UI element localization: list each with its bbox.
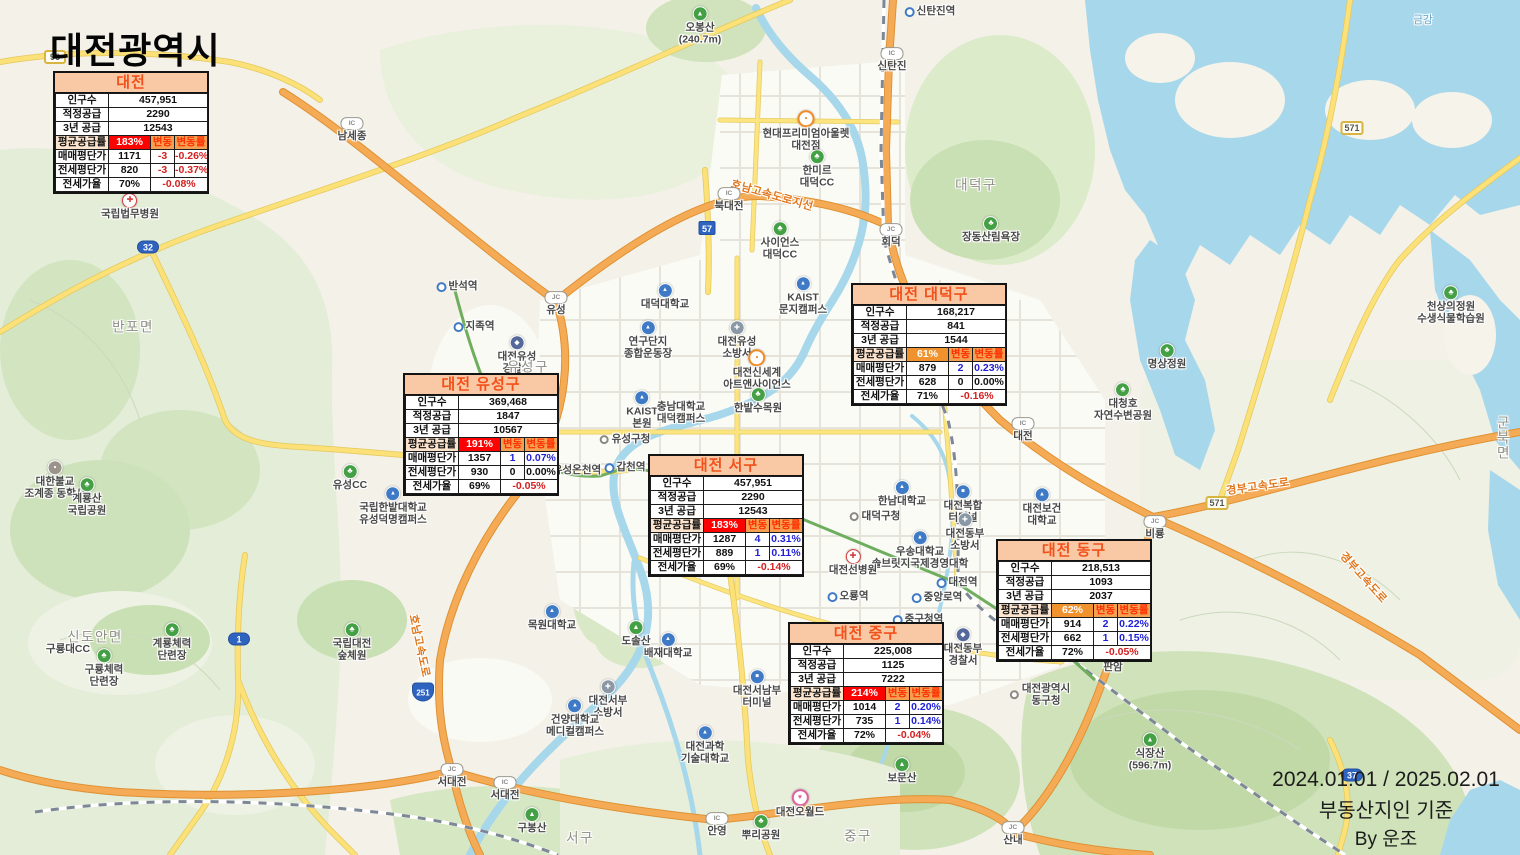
map-label-text: 경부고속도로 [1226, 476, 1291, 497]
jeonse-ratio-value: 69% [704, 561, 746, 575]
population-value: 225,008 [844, 645, 943, 659]
map-label-jc: JC서대전 [438, 763, 467, 789]
footer-note: 2024.01.01 / 2025.02.01 부동산지인 기준 By 운조 [1272, 768, 1500, 851]
sale-rate-value: 0.20% [910, 701, 943, 715]
map-label-univ: 건양대학교 메디컬캠퍼스 [546, 698, 604, 738]
map-label-text: 대전과학 기술대학교 [681, 741, 729, 765]
map-label-text: 신도안면 [67, 629, 123, 644]
map-label-text: KAIST 문지캠퍼스 [779, 292, 827, 316]
map-label-ic: IC북대전 [715, 187, 744, 213]
map-label-terminal: 대전복합 터미널 [944, 484, 983, 524]
row-label-jeonse-ratio: 전세가율 [651, 561, 704, 575]
station-icon [828, 592, 838, 602]
map-label-univ: 대덕대학교 [641, 283, 689, 311]
supply-rate-value: 214% [844, 687, 886, 701]
row-label-3yr-supply: 3년 공급 [56, 122, 109, 136]
map-label-road: 경부고속도로 [1226, 476, 1291, 497]
map-label-ic: IC신탄진 [878, 47, 907, 73]
map-label-station: 대전역 [937, 577, 978, 589]
hospital-icon [846, 549, 861, 564]
map-label-district: 군북면 [1496, 415, 1512, 460]
3yr-supply-value: 1544 [907, 334, 1006, 348]
sale-change-value: 2 [949, 362, 973, 376]
supply-rate-value: 62% [1052, 604, 1094, 618]
map-label-fire: 대전유성 소방서 [718, 320, 757, 360]
univ-icon [641, 320, 656, 335]
sale-rate-value: 0.23% [973, 362, 1006, 376]
map-label-text: 대전광역시 동구청 [1022, 683, 1070, 707]
jc-badge: JC [880, 223, 903, 236]
mountain-icon [628, 620, 643, 635]
stats-table-jung-gu: 대전 중구인구수225,008적정공급11253년 공급7222평균공급률214… [788, 622, 944, 745]
sale-rate-value: 0.31% [770, 533, 803, 547]
map-label-text: 계룡체력 단련장 [153, 638, 192, 662]
station-icon [912, 593, 922, 603]
page-title: 대전광역시 [50, 22, 221, 74]
stats-grid: 인구수457,951적정공급22903년 공급12543평균공급률183%변동변… [650, 476, 803, 575]
supply-rate-value: 191% [459, 438, 501, 452]
stats-grid: 인구수168,217적정공급8413년 공급1544평균공급률61%변동변동률매… [853, 305, 1006, 404]
shopping-icon [797, 110, 814, 127]
proper-supply-value: 2290 [704, 491, 803, 505]
map-label-plain: 구룡대CC [46, 644, 90, 656]
map-label-park: 한밭수목원 [734, 387, 782, 415]
row-label-supply-rate: 평균공급률 [56, 136, 109, 150]
change-rate-header: 변동률 [910, 687, 943, 701]
jeonse-change-value: 0 [501, 466, 525, 480]
map-label-mountain: 식장산 (596.7m) [1129, 732, 1172, 772]
park-icon [344, 622, 359, 637]
sale-price-value: 879 [907, 362, 949, 376]
map-label-station: 오룡역 [828, 591, 869, 603]
map-label-police: 대전동부 경찰서 [944, 627, 983, 667]
table-title: 대전 대덕구 [853, 285, 1005, 305]
map-label-park: 구룡체력 단련장 [85, 648, 124, 688]
row-label-sale-price: 매매평단가 [791, 701, 844, 715]
stats-grid: 인구수225,008적정공급11253년 공급7222평균공급률214%변동변동… [790, 644, 943, 743]
map-label-park: 천상의정원 수생식물학습원 [1417, 285, 1485, 325]
map-label-ic: IC안영 [706, 812, 729, 838]
map-label-text: 대전 [1013, 431, 1032, 443]
map-label-text: 대한불교 조계종 동학사 [25, 476, 86, 500]
government-office-icon [600, 436, 609, 445]
map-label-text: 유성 [546, 305, 565, 317]
row-label-supply-rate: 평균공급률 [854, 348, 907, 362]
row-label-3yr-supply: 3년 공급 [999, 590, 1052, 604]
map-label-text: 산내 [1003, 835, 1022, 847]
jeonse-ratio-rate-value: -0.05% [1094, 646, 1151, 660]
map-label-text: 대전유성 경찰서 [498, 351, 537, 375]
jeonse-rate-value: 0.15% [1118, 632, 1151, 646]
park-icon [751, 387, 766, 402]
jc-badge: JC [1002, 821, 1025, 834]
map-label-text: 대전보건 대학교 [1023, 503, 1062, 527]
map-label-station: 중앙로역 [912, 592, 963, 604]
map-label-text: 남세종 [338, 131, 367, 143]
map-label-text: 대전서부 소방서 [589, 695, 628, 719]
table-title: 대전 중구 [790, 624, 942, 644]
row-label-sale-price: 매매평단가 [56, 150, 109, 164]
map-label-road: 호남고속도로 [406, 614, 431, 679]
map-label-text: 명상정원 [1148, 359, 1187, 371]
table-title: 대전 서구 [650, 456, 802, 476]
row-label-jeonse-price: 전세평단가 [854, 376, 907, 390]
proper-supply-value: 1093 [1052, 576, 1151, 590]
jeonse-rate-value: -0.37% [175, 164, 208, 178]
row-label-jeonse-ratio: 전세가율 [56, 178, 109, 192]
map-label-text: KAIST 본원 [626, 406, 658, 430]
stats-table-daedeok-gu: 대전 대덕구인구수168,217적정공급8413년 공급1544평균공급률61%… [851, 283, 1007, 406]
map-label-jc: JC비룡 [1144, 515, 1167, 541]
map-label-road: 호남고속도로지선 [729, 178, 814, 213]
map-label-text: 신탄진역 [917, 6, 956, 18]
map-label-text: 사이언스 대덕CC [761, 237, 800, 261]
map-label-text: 신탄진 [878, 61, 907, 73]
row-label-sale-price: 매매평단가 [651, 533, 704, 547]
map-label-terminal: 대전서남부 터미널 [733, 669, 781, 709]
map-label-text: 반석역 [449, 281, 478, 293]
jeonse-price-value: 889 [704, 547, 746, 561]
map-label-text: 중구 [844, 828, 872, 843]
row-label-population: 인구수 [56, 94, 109, 108]
map-label-univ: 대전보건 대학교 [1023, 487, 1062, 527]
univ-icon [912, 530, 927, 545]
park-icon [984, 216, 999, 231]
sale-price-value: 1014 [844, 701, 886, 715]
government-office-icon [850, 513, 859, 522]
population-value: 457,951 [704, 477, 803, 491]
jeonse-price-value: 930 [459, 466, 501, 480]
map-label-text: 천상의정원 수생식물학습원 [1417, 301, 1485, 325]
proper-supply-value: 1125 [844, 659, 943, 673]
map-label-text: 대덕대학교 [641, 299, 689, 311]
map-label-govt: 유성구청 [600, 434, 651, 446]
3yr-supply-value: 2037 [1052, 590, 1151, 604]
map-label-text: 뿌리공원 [742, 830, 781, 842]
map-label-text: 한미르 대덕CC [800, 165, 835, 189]
jeonse-ratio-rate-value: -0.14% [746, 561, 803, 575]
attraction-icon [792, 789, 809, 806]
row-label-sale-price: 매매평단가 [999, 618, 1052, 632]
mountain-icon [1142, 732, 1157, 747]
map-label-text: 서대전 [491, 790, 520, 802]
map-label-road: 경부고속도로 [1337, 550, 1389, 606]
map-label-mountain: 도솔산 [622, 620, 651, 648]
map-label-park: 장동산림욕장 [962, 216, 1020, 244]
park-icon [772, 221, 787, 236]
row-label-proper-supply: 적정공급 [56, 108, 109, 122]
3yr-supply-value: 10567 [459, 424, 558, 438]
table-title: 대전 유성구 [405, 375, 557, 395]
map-label-text: 식장산 (596.7m) [1129, 748, 1172, 772]
row-label-proper-supply: 적정공급 [651, 491, 704, 505]
row-label-proper-supply: 적정공급 [854, 320, 907, 334]
row-label-jeonse-ratio: 전세가율 [999, 646, 1052, 660]
row-label-jeonse-ratio: 전세가율 [406, 480, 459, 494]
sale-price-value: 1357 [459, 452, 501, 466]
map-label-district: 대덕구 [955, 177, 997, 192]
map-label-park: 유성CC [333, 464, 368, 492]
park-icon [810, 149, 825, 164]
univ-icon [661, 632, 676, 647]
map-label-temple: 대한불교 조계종 동학사 [25, 460, 86, 500]
jeonse-ratio-rate-value: -0.04% [886, 729, 943, 743]
route-shield: 32 [137, 241, 159, 254]
map-label-text: 연구단지 종합운동장 [624, 336, 672, 360]
sale-price-value: 1171 [109, 150, 151, 164]
fire-icon [600, 679, 615, 694]
map-label-text: 장동산림욕장 [962, 232, 1020, 244]
map-label-text: 오룡역 [840, 591, 869, 603]
police-icon [955, 627, 970, 642]
stats-table-seo-gu: 대전 서구인구수457,951적정공급22903년 공급12543평균공급률18… [648, 454, 804, 577]
terminal-icon [750, 669, 765, 684]
jeonse-price-value: 628 [907, 376, 949, 390]
proper-supply-value: 841 [907, 320, 1006, 334]
map-label-univ: 배재대학교 [644, 632, 692, 660]
map-label-univ: KAIST 본원 [626, 390, 658, 430]
change-rate-header: 변동률 [1118, 604, 1151, 618]
map-label-text: 안영 [707, 826, 726, 838]
jeonse-ratio-value: 71% [907, 390, 949, 404]
route-shield: 571 [1340, 121, 1363, 135]
row-label-supply-rate: 평균공급률 [999, 604, 1052, 618]
map-label-text: 유성CC [333, 480, 368, 492]
univ-icon [568, 698, 583, 713]
map-label-park: 명상정원 [1148, 343, 1187, 371]
row-label-3yr-supply: 3년 공급 [854, 334, 907, 348]
population-value: 369,468 [459, 396, 558, 410]
row-label-jeonse-price: 전세평단가 [56, 164, 109, 178]
map-label-text: 대덕구청 [862, 511, 901, 523]
map-label-text: 대전동부 경찰서 [944, 643, 983, 667]
3yr-supply-value: 12543 [109, 122, 208, 136]
map-label-univ: KAIST 문지캠퍼스 [779, 276, 827, 316]
row-label-jeonse-price: 전세평단가 [651, 547, 704, 561]
jc-badge: JC [1144, 515, 1167, 528]
jeonse-rate-value: 0.11% [770, 547, 803, 561]
map-label-station: 신탄진역 [905, 6, 956, 18]
footer-date-range: 2024.01.01 / 2025.02.01 [1272, 768, 1500, 792]
univ-icon [1034, 487, 1049, 502]
temple-icon [47, 460, 62, 475]
jeonse-change-value: 1 [746, 547, 770, 561]
map-label-text: 충남대학교 대덕캠퍼스 [657, 401, 705, 425]
map-label-text: 갑천역 [617, 462, 646, 474]
map-label-text: 반포면 [112, 319, 154, 334]
government-office-icon [1010, 691, 1019, 700]
map-label-water: 금강 [1413, 15, 1432, 27]
jeonse-price-value: 662 [1052, 632, 1094, 646]
change-rate-header: 변동률 [973, 348, 1006, 362]
map-label-text: 국립한밭대학교 유성덕명캠퍼스 [359, 502, 427, 526]
univ-icon [698, 725, 713, 740]
ic-badge: IC [1012, 417, 1035, 430]
univ-icon [386, 486, 401, 501]
map-label-park: 뿌리공원 [742, 814, 781, 842]
jc-badge: JC [440, 763, 463, 776]
map-label-text: 대전복합 터미널 [944, 500, 983, 524]
jeonse-price-value: 735 [844, 715, 886, 729]
change-rate-header: 변동률 [175, 136, 208, 150]
row-label-proper-supply: 적정공급 [406, 410, 459, 424]
row-label-population: 인구수 [406, 396, 459, 410]
map-label-park: 한미르 대덕CC [800, 149, 835, 189]
row-label-3yr-supply: 3년 공급 [406, 424, 459, 438]
map-label-shopping: 대전신세계 아트앤사이언스 [723, 349, 791, 391]
jc-badge: JC [545, 291, 568, 304]
sale-rate-value: -0.26% [175, 150, 208, 164]
map-label-text: 목원대학교 [528, 620, 576, 632]
map-label-text: 서구 [566, 830, 594, 845]
map-label-text: 현대프리미엄아울렛 대전점 [763, 128, 850, 152]
map-label-district: 신도안면 [67, 629, 123, 644]
change-header: 변동 [1094, 604, 1118, 618]
map-label-text: 구룡체력 단련장 [85, 664, 124, 688]
police-icon [509, 335, 524, 350]
sale-price-value: 1287 [704, 533, 746, 547]
shopping-icon [749, 349, 766, 366]
jeonse-ratio-value: 72% [844, 729, 886, 743]
map-label-text: 대전역 [949, 577, 978, 589]
proper-supply-value: 1847 [459, 410, 558, 424]
row-label-proper-supply: 적정공급 [999, 576, 1052, 590]
map-label-text: 구룡대CC [46, 644, 90, 656]
population-value: 168,217 [907, 306, 1006, 320]
map-label-park: 계룡체력 단련장 [153, 622, 192, 662]
station-icon [454, 322, 464, 332]
map-label-univ: 대전과학 기술대학교 [681, 725, 729, 765]
population-value: 218,513 [1052, 562, 1151, 576]
stats-table-yuseong-gu: 대전 유성구인구수369,468적정공급18473년 공급10567평균공급률1… [403, 373, 559, 496]
row-label-supply-rate: 평균공급률 [651, 519, 704, 533]
map-label-govt: 대전광역시 동구청 [1010, 683, 1070, 707]
row-label-jeonse-price: 전세평단가 [791, 715, 844, 729]
row-label-proper-supply: 적정공급 [791, 659, 844, 673]
route-shield: 251 [412, 683, 434, 702]
map-label-text: 금강 [1413, 15, 1432, 27]
station-icon [605, 463, 615, 473]
jeonse-change-value: 1 [886, 715, 910, 729]
map-label-text: 유성구청 [612, 434, 651, 446]
map-label-park: 국립대전 숲체원 [333, 622, 372, 662]
jeonse-ratio-value: 69% [459, 480, 501, 494]
map-label-text: 국립법무병원 [101, 209, 159, 221]
row-label-jeonse-price: 전세평단가 [406, 466, 459, 480]
map-label-text: 판암 [1103, 662, 1122, 674]
map-label-text: 배재대학교 [644, 648, 692, 660]
map-labels-layer: 국립법무병원반포면대한불교 조계종 동학사계룡산 국립공원유성CC국립한밭대학교… [0, 0, 1520, 855]
park-icon [96, 648, 111, 663]
row-label-population: 인구수 [854, 306, 907, 320]
park-icon [1159, 343, 1174, 358]
map-label-police: 대전유성 경찰서 [498, 335, 537, 375]
row-label-supply-rate: 평균공급률 [406, 438, 459, 452]
map-label-text: 서대전 [438, 777, 467, 789]
park-icon [164, 622, 179, 637]
fire-icon [729, 320, 744, 335]
station-icon [437, 282, 447, 292]
sale-change-value: -3 [151, 150, 175, 164]
map-label-fire: 대전서부 소방서 [589, 679, 628, 719]
stats-grid: 인구수369,468적정공급18473년 공급10567평균공급률191%변동변… [405, 395, 558, 494]
row-label-3yr-supply: 3년 공급 [791, 673, 844, 687]
footer-author: By 운조 [1272, 824, 1500, 851]
change-rate-header: 변동률 [525, 438, 558, 452]
map-label-univ: 우송대학교 솔브릿지국제경영대학 [872, 530, 969, 570]
population-value: 457,951 [109, 94, 208, 108]
map-label-park: 대청호 자연수변공원 [1094, 382, 1152, 422]
map-label-text: 대전서남부 터미널 [733, 685, 781, 709]
row-label-jeonse-price: 전세평단가 [999, 632, 1052, 646]
supply-rate-value: 183% [704, 519, 746, 533]
univ-icon [545, 604, 560, 619]
map-label-station: 반석역 [437, 281, 478, 293]
terminal-icon [955, 484, 970, 499]
univ-icon [895, 480, 910, 495]
map-label-text: 대덕구 [955, 177, 997, 192]
jeonse-rate-value: 0.14% [910, 715, 943, 729]
ic-badge: IC [493, 776, 516, 789]
3yr-supply-value: 7222 [844, 673, 943, 687]
sale-rate-value: 0.07% [525, 452, 558, 466]
route-shield: 57 [699, 221, 716, 235]
row-label-sale-price: 매매평단가 [406, 452, 459, 466]
jeonse-ratio-value: 70% [109, 178, 151, 192]
row-label-supply-rate: 평균공급률 [791, 687, 844, 701]
table-title: 대전 [55, 73, 207, 93]
jeonse-ratio-value: 72% [1052, 646, 1094, 660]
univ-icon [796, 276, 811, 291]
park-icon [753, 814, 768, 829]
fire-icon [957, 512, 972, 527]
map-label-station: 지족역 [454, 321, 495, 333]
univ-icon [658, 283, 673, 298]
map-label-text: 구봉산 [518, 823, 547, 835]
stats-grid: 인구수457,951적정공급22903년 공급12543평균공급률183%변동변… [55, 93, 208, 192]
sale-rate-value: 0.22% [1118, 618, 1151, 632]
hospital-icon [123, 193, 138, 208]
map-label-jc: JC산내 [1002, 821, 1025, 847]
sale-change-value: 2 [886, 701, 910, 715]
map-label-text: 유성온천역 [553, 465, 601, 477]
row-label-sale-price: 매매평단가 [854, 362, 907, 376]
map-label-district: 중구 [844, 828, 872, 843]
map-label-plain: 충남대학교 대덕캠퍼스 [657, 401, 705, 425]
sale-price-value: 914 [1052, 618, 1094, 632]
map-label-ic: IC남세종 [338, 117, 367, 143]
mountain-icon [894, 757, 909, 772]
jeonse-ratio-rate-value: -0.16% [949, 390, 1006, 404]
map-label-park: 계룡산 국립공원 [68, 477, 107, 517]
map-label-text: 회덕 [881, 237, 900, 249]
map-label-text: 군북면 [1496, 415, 1512, 460]
jeonse-change-value: 0 [949, 376, 973, 390]
footer-source: 부동산지인 기준 [1272, 794, 1500, 823]
park-icon [79, 477, 94, 492]
row-label-population: 인구수 [999, 562, 1052, 576]
change-rate-header: 변동률 [770, 519, 803, 533]
3yr-supply-value: 12543 [704, 505, 803, 519]
map-label-text: 한남대학교 [878, 496, 926, 508]
map-label-ic: IC서대전 [491, 776, 520, 802]
mountain-icon [692, 6, 707, 21]
table-title: 대전 동구 [998, 541, 1150, 561]
map-label-text: 한밭수목원 [734, 403, 782, 415]
proper-supply-value: 2290 [109, 108, 208, 122]
map-label-hospital: 국립법무병원 [101, 193, 159, 221]
map-label-text: 계룡산 국립공원 [68, 493, 107, 517]
